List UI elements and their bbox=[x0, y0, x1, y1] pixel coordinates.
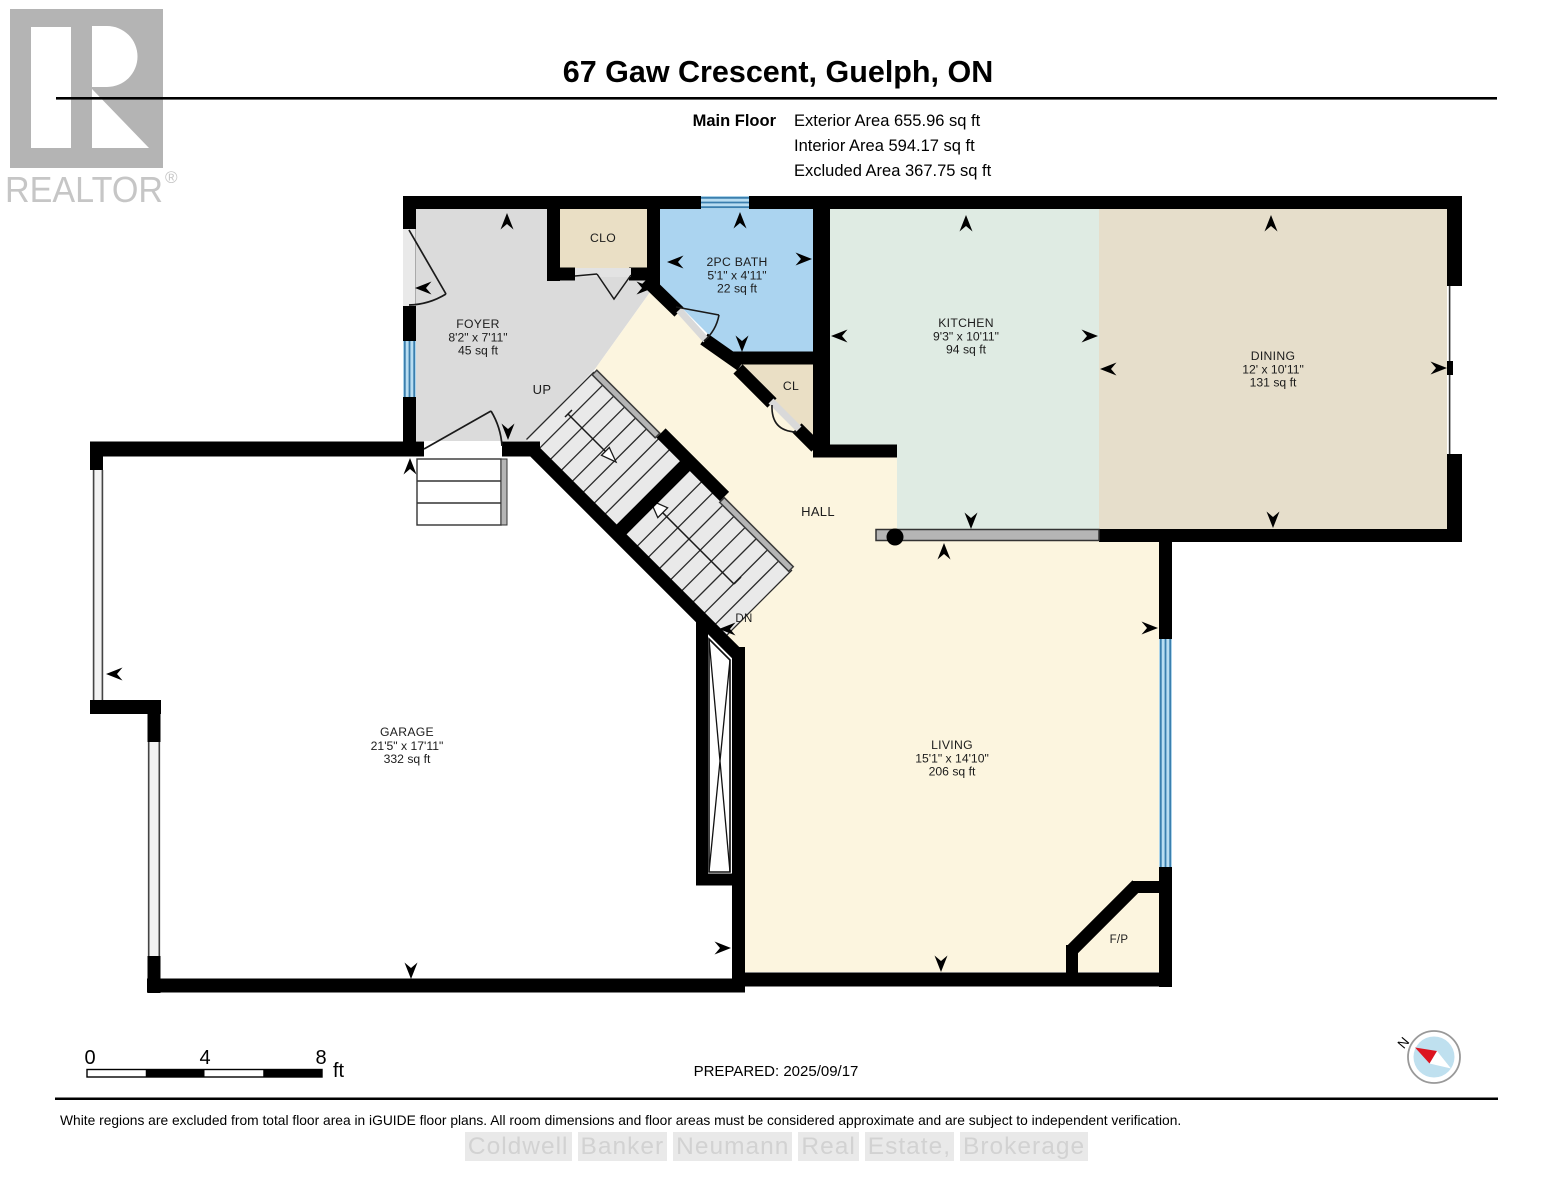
svg-text:KITCHEN: KITCHEN bbox=[938, 316, 994, 330]
svg-text:21'5" x 17'11": 21'5" x 17'11" bbox=[371, 739, 444, 753]
svg-text:DINING: DINING bbox=[1251, 349, 1295, 363]
svg-text:2PC BATH: 2PC BATH bbox=[706, 255, 767, 269]
svg-text:DN: DN bbox=[735, 613, 752, 625]
svg-text:131 sq ft: 131 sq ft bbox=[1250, 376, 1297, 390]
svg-text:9'3" x 10'11": 9'3" x 10'11" bbox=[933, 330, 999, 344]
svg-text:PREPARED: 2025/09/17: PREPARED: 2025/09/17 bbox=[694, 1063, 859, 1080]
svg-text:45 sq ft: 45 sq ft bbox=[458, 344, 499, 358]
svg-text:Excluded Area 367.75 sq ft: Excluded Area 367.75 sq ft bbox=[794, 162, 992, 180]
svg-text:8'2" x 7'11": 8'2" x 7'11" bbox=[448, 331, 507, 345]
svg-text:ft: ft bbox=[333, 1060, 345, 1082]
svg-text:GARAGE: GARAGE bbox=[380, 725, 434, 739]
svg-text:15'1" x 14'10": 15'1" x 14'10" bbox=[915, 752, 989, 766]
svg-text:UP: UP bbox=[533, 382, 552, 397]
svg-text:F/P: F/P bbox=[1110, 934, 1129, 946]
svg-text:22 sq ft: 22 sq ft bbox=[717, 282, 758, 296]
svg-text:Main Floor: Main Floor bbox=[693, 112, 777, 130]
svg-text:0: 0 bbox=[84, 1047, 95, 1069]
svg-text:FOYER: FOYER bbox=[456, 317, 499, 331]
svg-text:4: 4 bbox=[199, 1047, 210, 1069]
svg-text:67 Gaw Crescent, Guelph, ON: 67 Gaw Crescent, Guelph, ON bbox=[563, 55, 994, 89]
svg-text:REALTOR: REALTOR bbox=[5, 169, 163, 210]
svg-text:94 sq ft: 94 sq ft bbox=[946, 343, 987, 357]
svg-text:LIVING: LIVING bbox=[931, 738, 973, 752]
svg-text:Exterior Area 655.96 sq ft: Exterior Area 655.96 sq ft bbox=[794, 112, 981, 130]
svg-text:HALL: HALL bbox=[801, 504, 835, 519]
svg-text:5'1" x 4'11": 5'1" x 4'11" bbox=[707, 269, 766, 283]
svg-text:®: ® bbox=[165, 168, 178, 187]
svg-text:8: 8 bbox=[315, 1047, 326, 1069]
svg-text:CLO: CLO bbox=[590, 231, 616, 245]
svg-text:332 sq ft: 332 sq ft bbox=[384, 752, 431, 766]
svg-text:12' x 10'11": 12' x 10'11" bbox=[1242, 363, 1304, 377]
svg-text:206 sq ft: 206 sq ft bbox=[929, 765, 976, 779]
svg-text:Interior Area 594.17 sq ft: Interior Area 594.17 sq ft bbox=[794, 137, 975, 155]
svg-text:White regions are excluded fro: White regions are excluded from total fl… bbox=[60, 1113, 1181, 1128]
svg-text:CL: CL bbox=[783, 379, 799, 393]
